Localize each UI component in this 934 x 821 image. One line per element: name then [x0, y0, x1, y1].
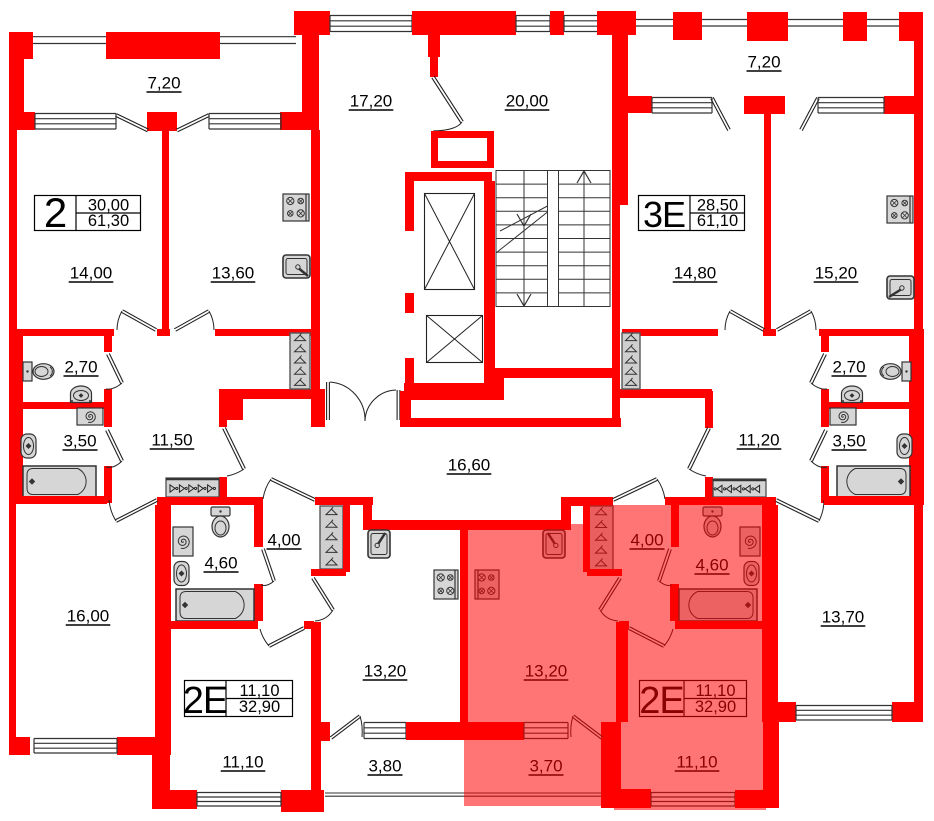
svg-text:2: 2 — [44, 189, 66, 236]
svg-text:11,10: 11,10 — [222, 753, 263, 772]
svg-text:13,20: 13,20 — [364, 662, 407, 681]
svg-text:3Е: 3Е — [643, 194, 685, 235]
svg-text:11,20: 11,20 — [738, 431, 779, 450]
svg-text:4,00: 4,00 — [267, 531, 300, 550]
svg-text:4,60: 4,60 — [204, 554, 237, 573]
svg-text:7,20: 7,20 — [147, 74, 180, 93]
svg-text:7,20: 7,20 — [747, 53, 780, 72]
svg-text:14,00: 14,00 — [70, 264, 113, 283]
svg-text:13,60: 13,60 — [212, 264, 255, 283]
svg-text:2,70: 2,70 — [64, 358, 97, 377]
svg-text:3,50: 3,50 — [832, 432, 865, 451]
svg-text:14,80: 14,80 — [674, 264, 717, 283]
svg-text:61,30: 61,30 — [88, 212, 129, 230]
svg-text:20,00: 20,00 — [506, 92, 549, 111]
svg-text:61,10: 61,10 — [697, 212, 738, 230]
svg-text:3,50: 3,50 — [63, 432, 96, 451]
svg-text:11,50: 11,50 — [151, 431, 192, 450]
svg-text:15,20: 15,20 — [815, 264, 858, 283]
svg-text:13,70: 13,70 — [822, 608, 865, 627]
svg-text:16,60: 16,60 — [448, 456, 491, 475]
svg-text:2,70: 2,70 — [832, 358, 865, 377]
svg-text:17,20: 17,20 — [350, 92, 393, 111]
svg-text:3,80: 3,80 — [368, 757, 401, 776]
svg-text:32,90: 32,90 — [239, 698, 280, 716]
svg-text:2Е: 2Е — [183, 680, 227, 722]
svg-text:16,00: 16,00 — [67, 607, 110, 626]
